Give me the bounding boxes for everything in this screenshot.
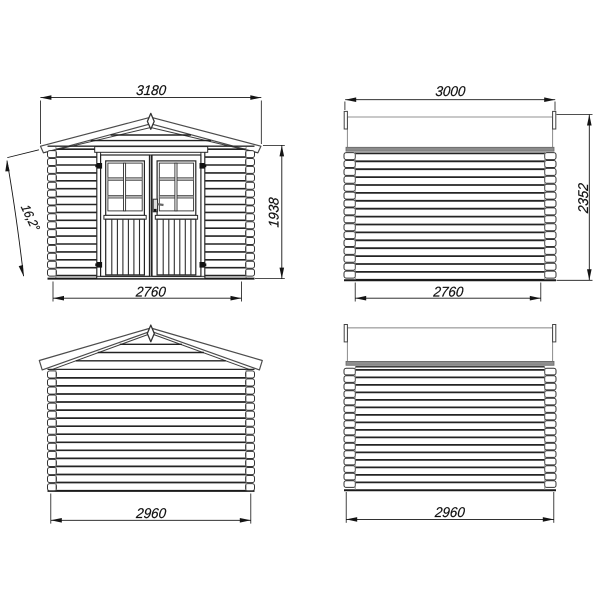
svg-text:2760: 2760 bbox=[134, 283, 166, 299]
svg-text:2960: 2960 bbox=[433, 504, 465, 520]
svg-text:1938: 1938 bbox=[266, 197, 282, 228]
svg-text:2760: 2760 bbox=[432, 284, 464, 300]
svg-text:2960: 2960 bbox=[135, 505, 167, 521]
svg-text:3180: 3180 bbox=[136, 82, 167, 98]
svg-text:2352: 2352 bbox=[575, 182, 591, 214]
svg-text:3000: 3000 bbox=[435, 83, 466, 99]
